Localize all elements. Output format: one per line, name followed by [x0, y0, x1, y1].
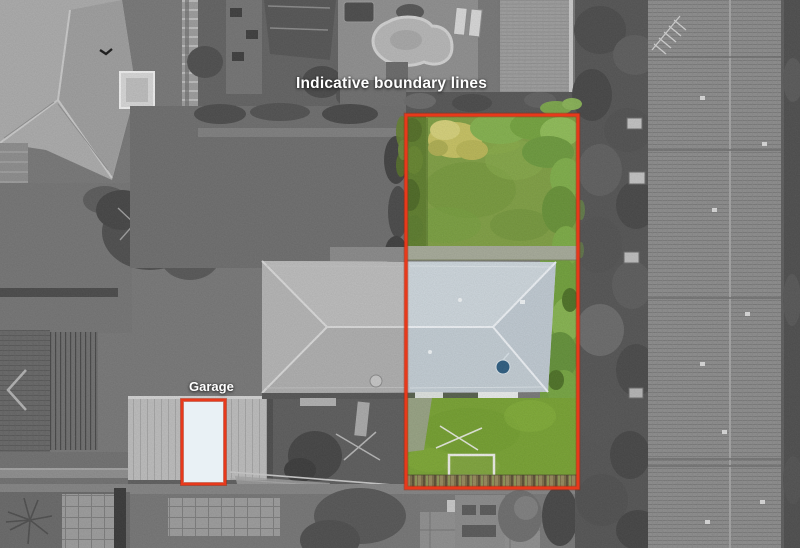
garage-label: Garage [189, 379, 234, 394]
garage-highlight [182, 400, 225, 484]
aerial-photo: Indicative boundary lines Garage [0, 0, 800, 548]
boundary-label: Indicative boundary lines [296, 75, 487, 93]
